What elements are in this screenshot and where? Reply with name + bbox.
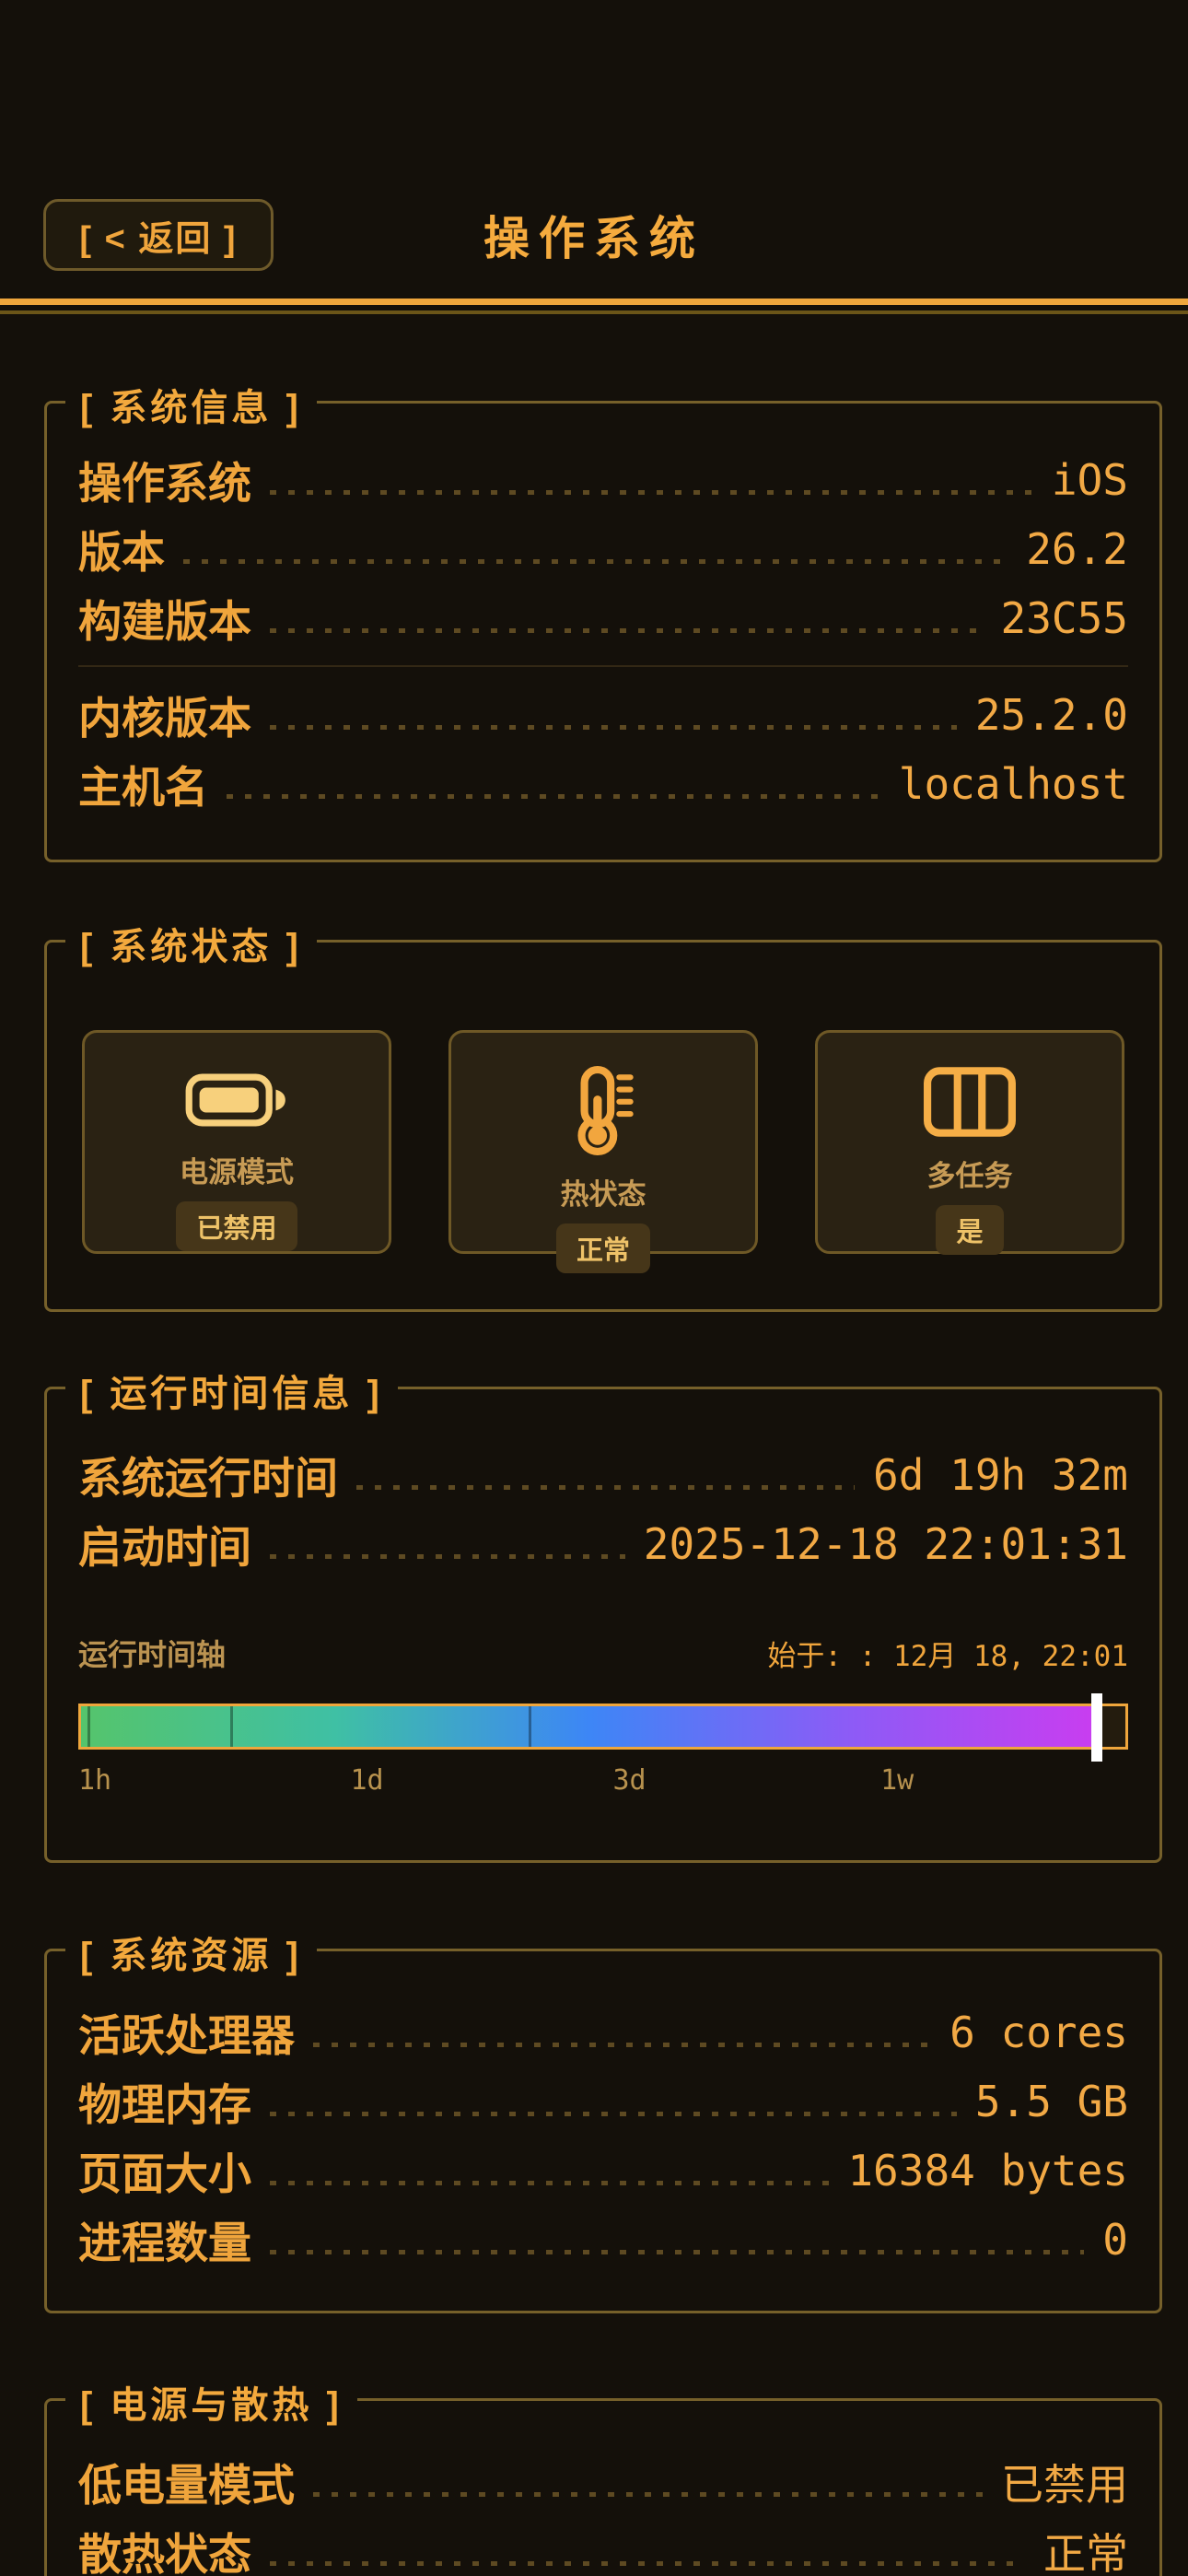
card-label: 电源模式 xyxy=(180,1149,294,1190)
section-system-resources: [ 系统资源 ] 活跃处理器 6 cores 物理内存 5.5 GB 页面大小 … xyxy=(44,1949,1162,2313)
section-system-info: [ 系统信息 ] 操作系统 iOS 版本 26.2 构建版本 23C55 内核版… xyxy=(44,401,1162,862)
uptime-tick-label: 3d xyxy=(612,1764,646,1797)
leader-dots xyxy=(270,2250,1084,2254)
leader-dots xyxy=(270,2561,1025,2566)
section-legend: [ 系统信息 ] xyxy=(65,378,317,431)
row-memory: 物理内存 5.5 GB xyxy=(78,2067,1128,2136)
section-uptime-info: [ 运行时间信息 ] 系统运行时间 6d 19h 32m 启动时间 2025-1… xyxy=(44,1387,1162,1863)
row-value: iOS xyxy=(1052,455,1128,505)
uptime-tick-labels: 1h1d3d1w xyxy=(78,1764,1128,1805)
row-label: 页面大小 xyxy=(78,2138,251,2202)
section-legend: [ 系统状态 ] xyxy=(65,917,317,970)
leader-dots xyxy=(356,1485,855,1490)
status-card-power-mode: 电源模式 已禁用 xyxy=(82,1030,391,1254)
row-value: 16384 bytes xyxy=(847,2146,1128,2195)
multitask-columns-icon xyxy=(923,1066,1017,1138)
row-build: 构建版本 23C55 xyxy=(78,583,1128,652)
leader-dots xyxy=(227,794,880,799)
status-card-thermal: 热状态 正常 xyxy=(448,1030,758,1254)
card-label: 多任务 xyxy=(927,1153,1013,1194)
page-title: 操作系统 xyxy=(0,199,1188,271)
row-value: 2025-12-18 22:01:31 xyxy=(644,1519,1128,1569)
status-card-multitask: 多任务 是 xyxy=(815,1030,1124,1254)
row-label: 版本 xyxy=(78,517,165,580)
uptime-tick-label: 1d xyxy=(350,1764,383,1797)
thermometer-icon xyxy=(572,1066,635,1156)
row-label: 主机名 xyxy=(78,752,208,815)
row-uptime: 系统运行时间 6d 19h 32m xyxy=(78,1440,1128,1509)
leader-dots xyxy=(270,725,957,730)
status-badge: 是 xyxy=(936,1205,1003,1255)
row-value: 6d 19h 32m xyxy=(873,1450,1128,1500)
uptime-tick-label: 1h xyxy=(78,1764,111,1797)
uptime-tick-label: 1w xyxy=(880,1764,914,1797)
group-divider xyxy=(78,665,1128,667)
uptime-bar-fill xyxy=(81,1706,1097,1747)
timeline-header: 运行时间轴 始于: : 12月 18, 22:01 xyxy=(78,1632,1128,1674)
leader-dots xyxy=(313,2492,983,2497)
row-kernel: 内核版本 25.2.0 xyxy=(78,680,1128,749)
leader-dots xyxy=(270,490,1033,495)
status-cards: 电源模式 已禁用 热状态 正常 xyxy=(82,1030,1124,1254)
section-legend: [ 运行时间信息 ] xyxy=(65,1364,398,1417)
uptime-bar xyxy=(78,1704,1128,1750)
row-page-size: 页面大小 16384 bytes xyxy=(78,2136,1128,2205)
row-processors: 活跃处理器 6 cores xyxy=(78,1997,1128,2067)
row-boot-time: 启动时间 2025-12-18 22:01:31 xyxy=(78,1509,1128,1578)
section-system-status: [ 系统状态 ] 电源模式 已禁用 xyxy=(44,940,1162,1312)
leader-dots xyxy=(313,2043,931,2047)
section-legend: [ 电源与散热 ] xyxy=(65,2375,357,2429)
row-hostname: 主机名 localhost xyxy=(78,749,1128,818)
row-value: 26.2 xyxy=(1026,524,1128,574)
status-badge: 已禁用 xyxy=(176,1201,297,1251)
row-label: 启动时间 xyxy=(78,1512,251,1575)
row-thermal-state: 散热状态 正常 xyxy=(78,2516,1128,2576)
uptime-bar-tick xyxy=(230,1706,233,1747)
section-power-thermal: [ 电源与散热 ] 低电量模式 已禁用 散热状态 正常 xyxy=(44,2398,1162,2576)
row-label: 进程数量 xyxy=(78,2207,251,2271)
row-os: 操作系统 iOS xyxy=(78,445,1128,514)
uptime-bar-tick xyxy=(87,1706,90,1747)
header-divider xyxy=(0,299,1188,314)
leader-dots xyxy=(183,559,1007,564)
row-version: 版本 26.2 xyxy=(78,514,1128,583)
row-low-power-mode: 低电量模式 已禁用 xyxy=(78,2447,1128,2516)
row-label: 构建版本 xyxy=(78,586,251,650)
status-badge: 正常 xyxy=(556,1224,650,1273)
row-label: 物理内存 xyxy=(78,2069,251,2133)
row-value: 0 xyxy=(1102,2215,1128,2265)
battery-icon xyxy=(185,1066,288,1134)
row-value: 25.2.0 xyxy=(975,690,1128,740)
row-value: 6 cores xyxy=(949,2008,1128,2057)
card-label: 热状态 xyxy=(561,1171,646,1212)
leader-dots xyxy=(270,628,983,633)
leader-dots xyxy=(270,1554,625,1559)
row-label: 活跃处理器 xyxy=(78,2000,295,2064)
uptime-bar-marker xyxy=(1091,1693,1102,1762)
row-value: 正常 xyxy=(1043,2521,1128,2576)
row-value: 已禁用 xyxy=(1001,2452,1128,2512)
row-label: 低电量模式 xyxy=(78,2450,295,2513)
uptime-bar-tick xyxy=(529,1706,531,1747)
row-value: localhost xyxy=(899,759,1128,809)
row-label: 内核版本 xyxy=(78,683,251,746)
leader-dots xyxy=(270,2181,829,2185)
timeline-start-label: 始于: : 12月 18, 22:01 xyxy=(767,1633,1128,1674)
section-legend: [ 系统资源 ] xyxy=(65,1926,317,1979)
row-process-count: 进程数量 0 xyxy=(78,2205,1128,2274)
leader-dots xyxy=(270,2112,957,2116)
timeline-axis-label: 运行时间轴 xyxy=(78,1632,226,1674)
row-value: 5.5 GB xyxy=(975,2077,1128,2126)
row-value: 23C55 xyxy=(1001,593,1128,643)
row-label: 操作系统 xyxy=(78,448,251,511)
page-scroll[interactable]: [ < 返回 ] 操作系统 [ 系统信息 ] 操作系统 iOS 版本 26.2 … xyxy=(0,0,1188,2576)
row-label: 散热状态 xyxy=(78,2519,251,2576)
row-label: 系统运行时间 xyxy=(78,1443,338,1506)
